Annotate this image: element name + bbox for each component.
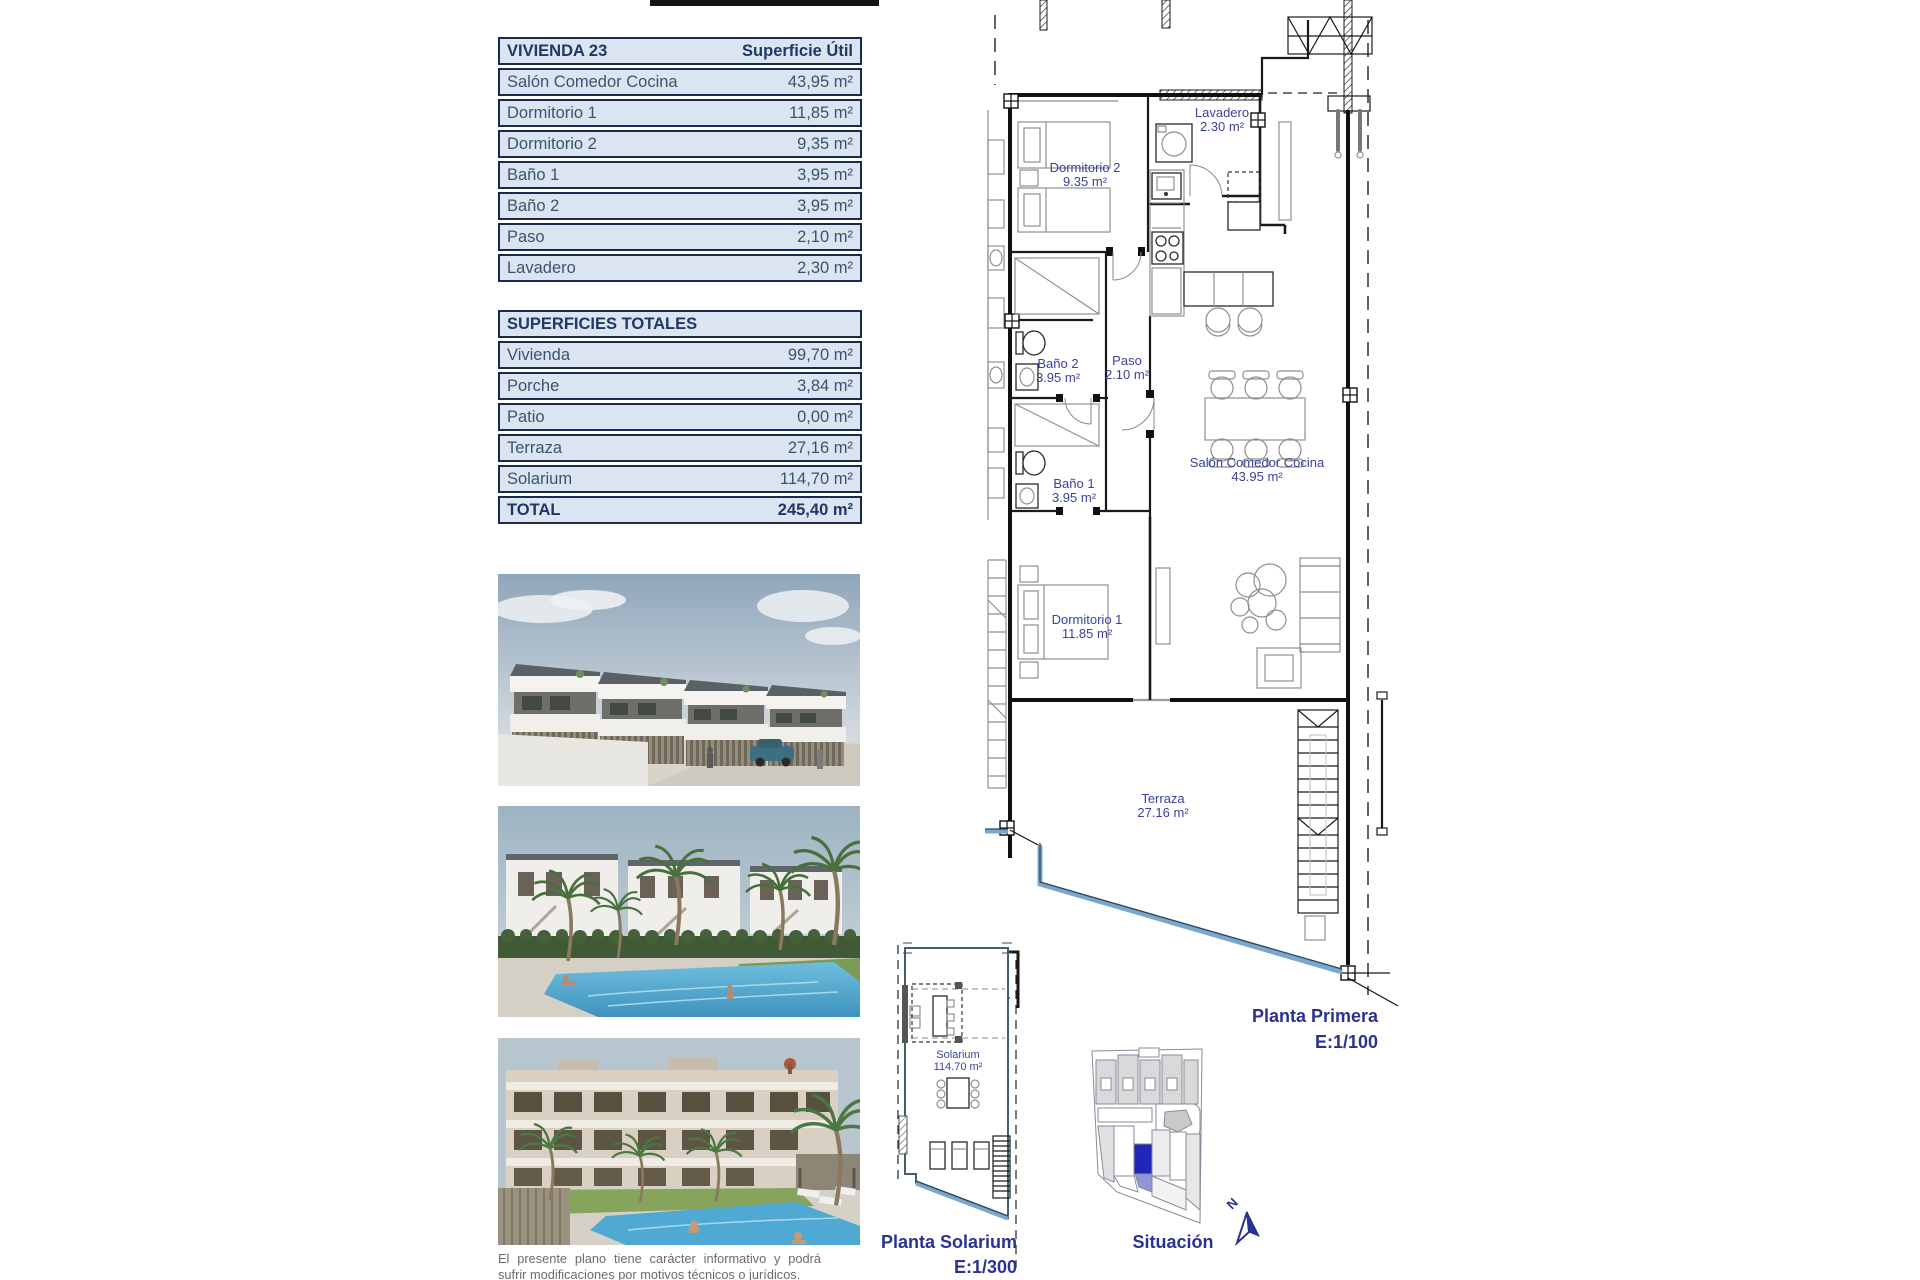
- room-label: Terraza: [1141, 791, 1185, 806]
- highlighted-unit: [1134, 1144, 1152, 1174]
- row-label: Vivienda: [507, 346, 570, 365]
- table-row: Salón Comedor Cocina 43,95 m²: [498, 68, 862, 96]
- table-row: Vivienda 99,70 m²: [498, 341, 862, 369]
- disclaimer-text: El presente plano tiene carácter informa…: [498, 1251, 821, 1280]
- render-photo-building: [498, 1038, 860, 1245]
- room-area: 3.95 m²: [1036, 370, 1081, 385]
- table-row: Terraza 27,16 m²: [498, 434, 862, 462]
- totals-table: SUPERFICIES TOTALES Vivienda 99,70 m² Po…: [498, 310, 862, 527]
- salon-furniture: [1156, 371, 1340, 688]
- table-total-row: TOTAL 245,40 m²: [498, 496, 862, 524]
- situacion-caption: Situación: [1085, 1229, 1261, 1255]
- table-row: Dormitorio 1 11,85 m²: [498, 99, 862, 127]
- caption-line: Planta Primera: [1120, 1003, 1378, 1029]
- row-label: Paso: [507, 228, 545, 247]
- row-label: Dormitorio 2: [507, 135, 597, 154]
- room-label: Lavadero: [1195, 105, 1249, 120]
- row-label: Solarium: [507, 470, 572, 489]
- room-area: 3.95 m²: [1052, 490, 1097, 505]
- caption-line: Situación: [1085, 1229, 1261, 1255]
- wall-junction-marker: [1005, 314, 1019, 328]
- floor-plan-solarium: Solarium 114.70 m²: [885, 932, 1027, 1276]
- top-edge-artifact: [650, 0, 879, 6]
- row-label: Terraza: [507, 439, 562, 458]
- room-area: 2.30 m²: [1200, 119, 1245, 134]
- row-label: Patio: [507, 408, 545, 427]
- room-label: Baño 1: [1053, 476, 1094, 491]
- row-value: 43,95 m²: [788, 73, 853, 92]
- row-label: Lavadero: [507, 259, 576, 278]
- wall-junction-marker: [1251, 113, 1265, 127]
- planta-solarium-caption: Planta Solarium E:1/300: [800, 1230, 1017, 1280]
- table-row: Baño 2 3,95 m²: [498, 192, 862, 220]
- room-label: Dormitorio 1: [1052, 612, 1123, 627]
- render-photo-pool: [498, 806, 860, 1017]
- room-area: 2.10 m²: [1105, 367, 1150, 382]
- room-label: Paso: [1112, 353, 1142, 368]
- render-photo-facade: [498, 574, 860, 786]
- table-row: Baño 1 3,95 m²: [498, 161, 862, 189]
- north-label: N: [1224, 1195, 1241, 1212]
- table-row: Solarium 114,70 m²: [498, 465, 862, 493]
- row-value: 27,16 m²: [788, 439, 853, 458]
- row-label: Salón Comedor Cocina: [507, 73, 678, 92]
- site-plan-situacion: N: [1078, 1042, 1274, 1254]
- room-area: 9.35 m²: [1063, 174, 1108, 189]
- row-label: Baño 2: [507, 197, 559, 216]
- row-value: 3,95 m²: [797, 166, 853, 185]
- table-row: Paso 2,10 m²: [498, 223, 862, 251]
- wall-junction-marker: [1004, 94, 1018, 108]
- solarium-loungers: [930, 1142, 989, 1169]
- wall-junction-marker: [1343, 388, 1357, 402]
- room-label: Solarium: [936, 1049, 979, 1061]
- row-label: Porche: [507, 377, 559, 396]
- table-row: Patio 0,00 m²: [498, 403, 862, 431]
- row-value: 2,30 m²: [797, 259, 853, 278]
- room-area: 43.95 m²: [1231, 469, 1283, 484]
- neighbor-stairs: [1288, 17, 1372, 54]
- row-value: 3,95 m²: [797, 197, 853, 216]
- boundary-lower-right: [1348, 692, 1398, 1006]
- row-value: 114,70 m²: [780, 470, 853, 489]
- room-label: Salón Comedor Cocina: [1190, 455, 1325, 470]
- hatched-wall: [899, 1116, 907, 1154]
- room-area: 11.85 m²: [1062, 626, 1113, 641]
- plant-icon: [1231, 564, 1286, 633]
- caption-line: Planta Solarium: [800, 1230, 1017, 1255]
- unit-areas-table: VIVIENDA 23 Superficie Útil Salón Comedo…: [498, 37, 862, 285]
- room-area: 27.16 m²: [1137, 805, 1189, 820]
- table-header-row: SUPERFICIES TOTALES: [498, 310, 862, 338]
- row-value: 11,85 m²: [789, 104, 853, 123]
- room-label: Baño 2: [1037, 356, 1078, 371]
- table-header-row: VIVIENDA 23 Superficie Útil: [498, 37, 862, 65]
- caption-line: E:1/100: [1120, 1029, 1378, 1055]
- table-row: Lavadero 2,30 m²: [498, 254, 862, 282]
- hatched-wall: [1162, 0, 1170, 28]
- room-area: 114.70 m²: [934, 1061, 983, 1073]
- exterior-stairs: [1298, 710, 1338, 940]
- row-label: Baño 1: [507, 166, 559, 185]
- row-value: 2,10 m²: [797, 228, 853, 247]
- unit-header-value: Superficie Útil: [742, 42, 853, 61]
- site-road: [1098, 1108, 1152, 1122]
- caption-line: E:1/300: [800, 1255, 1017, 1280]
- floor-plan-planta-primera: Lavadero 2.30 m² Dormitorio 2 9.35 m² Ba…: [980, 0, 1410, 1012]
- table-row: Dormitorio 2 9,35 m²: [498, 130, 862, 158]
- terrace-boundary-line: [985, 829, 1342, 972]
- row-value: 9,35 m²: [797, 135, 853, 154]
- totals-title: SUPERFICIES TOTALES: [507, 315, 697, 334]
- planta-primera-caption: Planta Primera E:1/100: [1120, 1003, 1378, 1055]
- unit-title: VIVIENDA 23: [507, 42, 607, 61]
- row-label: Dormitorio 1: [507, 104, 597, 123]
- row-value: 99,70 m²: [788, 346, 853, 365]
- total-label: TOTAL: [507, 501, 560, 520]
- table-row: Porche 3,84 m²: [498, 372, 862, 400]
- room-label: Dormitorio 2: [1050, 160, 1121, 175]
- plan-sheet: VIVIENDA 23 Superficie Útil Salón Comedo…: [0, 0, 1920, 1280]
- row-value: 3,84 m²: [797, 377, 853, 396]
- row-value: 0,00 m²: [797, 408, 853, 427]
- kitchen-fixtures: [1150, 122, 1291, 336]
- total-value: 245,40 m²: [778, 501, 853, 520]
- hatched-wall: [1040, 0, 1047, 30]
